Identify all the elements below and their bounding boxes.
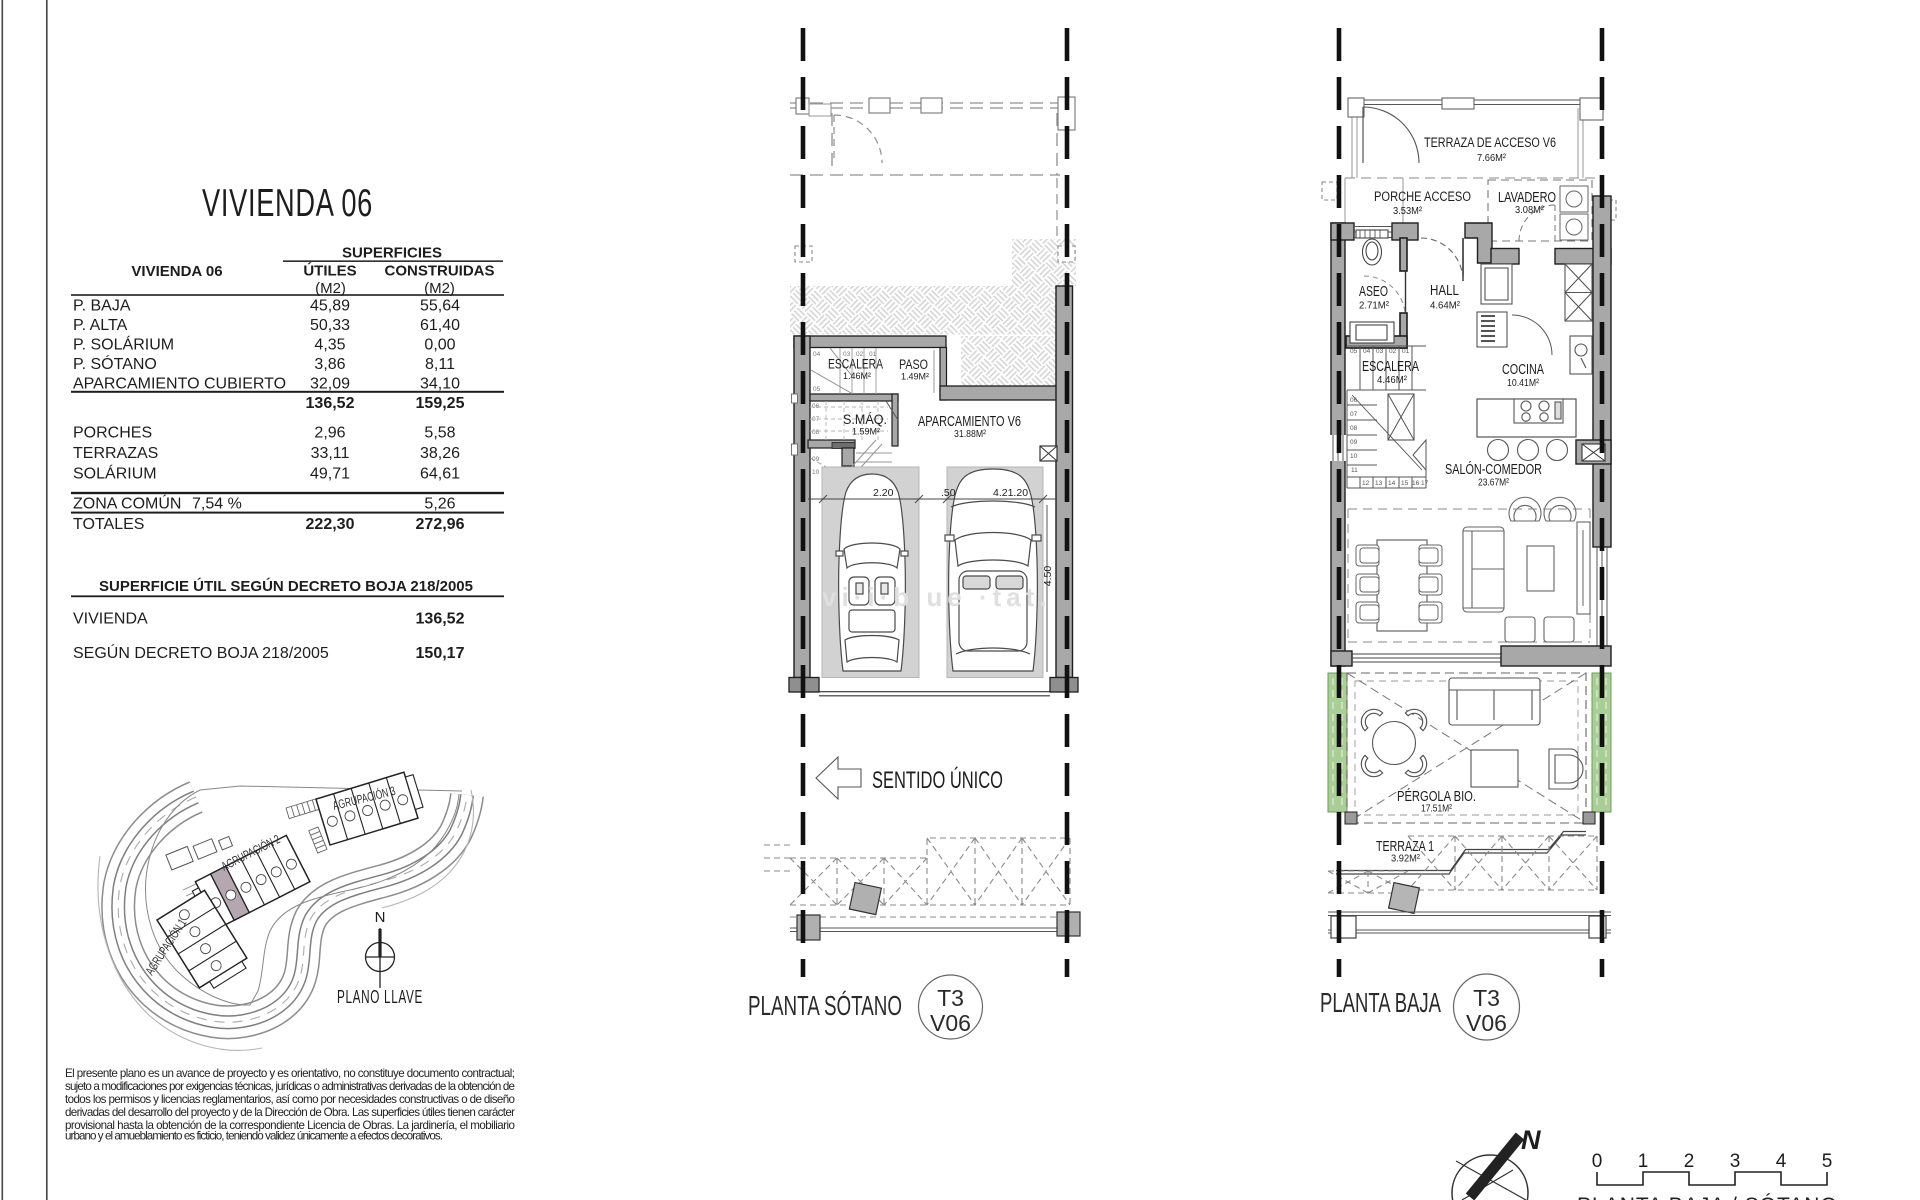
svg-text:P. SÓTANO: P. SÓTANO [73,354,157,373]
svg-text:2: 2 [1684,1151,1695,1172]
svg-text:5,26: 5,26 [424,496,455,513]
svg-text:2.20: 2.20 [873,487,894,499]
svg-text:S.MÁQ.: S.MÁQ. [843,412,887,427]
svg-text:.50: .50 [941,487,956,499]
svg-text:0: 0 [1592,1151,1603,1172]
svg-text:05: 05 [813,386,821,393]
svg-text:TERRAZA DE ACCESO V6: TERRAZA DE ACCESO V6 [1424,135,1556,150]
svg-text:06: 06 [812,403,820,410]
svg-text:N: N [375,909,386,926]
svg-text:vi·i·b ue ·tat.: vi·i·b ue ·tat. [822,582,1052,612]
svg-text:5: 5 [1822,1151,1833,1172]
svg-text:LAVADERO: LAVADERO [1498,190,1556,206]
svg-text:PORCHE ACCESO: PORCHE ACCESO [1374,189,1471,204]
svg-text:38,26: 38,26 [420,445,460,462]
svg-text:3,86: 3,86 [314,356,345,373]
svg-text:50,33: 50,33 [310,317,350,334]
svg-text:5,58: 5,58 [424,425,455,442]
svg-text:PLANTA BAJA: PLANTA BAJA [1320,987,1441,1018]
svg-text:4,35: 4,35 [314,337,345,354]
svg-text:8,11: 8,11 [425,356,455,373]
svg-text:1: 1 [1638,1151,1649,1172]
svg-text:sujeto a modificaciones por ex: sujeto a modificaciones por exigencias t… [65,1080,515,1093]
svg-text:13: 13 [1375,480,1383,487]
svg-text:45,89: 45,89 [310,298,350,315]
svg-text:V06: V06 [1466,1010,1507,1036]
svg-text:2,96: 2,96 [314,425,345,442]
svg-text:64,61: 64,61 [420,466,460,483]
svg-text:CONSTRUIDAS: CONSTRUIDAS [384,263,494,280]
svg-text:TOTALES: TOTALES [73,516,144,533]
svg-text:APARCAMIENTO V6: APARCAMIENTO V6 [918,414,1021,430]
svg-text:PLANTA SÓTANO: PLANTA SÓTANO [748,990,902,1021]
svg-text:3.53M²: 3.53M² [1393,206,1423,217]
svg-text:1.46M²: 1.46M² [843,371,871,382]
svg-text:N: N [1521,1125,1541,1155]
svg-text:09: 09 [1350,439,1358,446]
svg-text:T3: T3 [1473,985,1500,1011]
svg-text:VIVIENDA 06: VIVIENDA 06 [202,182,373,225]
svg-text:VIVIENDA 06: VIVIENDA 06 [131,263,222,280]
svg-text:04: 04 [813,351,821,358]
svg-text:23.67M²: 23.67M² [1478,478,1510,489]
svg-text:El presente plano es un avance: El presente plano es un avance de proyec… [65,1067,515,1080]
svg-text:3.08M²: 3.08M² [1515,205,1545,216]
svg-text:07: 07 [1350,411,1358,418]
svg-text:3: 3 [1730,1151,1741,1172]
svg-text:P. BAJA: P. BAJA [73,298,131,315]
svg-text:4: 4 [1776,1151,1787,1172]
svg-text:12: 12 [1362,480,1370,487]
svg-text:4.64M²: 4.64M² [1430,301,1461,312]
svg-text:16: 16 [1412,480,1420,487]
svg-text:COCINA: COCINA [1502,362,1544,378]
svg-text:1.59M²: 1.59M² [852,427,880,438]
svg-text:34,10: 34,10 [420,376,460,393]
svg-text:7.66M²: 7.66M² [1477,153,1507,164]
svg-text:49,71: 49,71 [310,466,350,483]
svg-text:TERRAZAS: TERRAZAS [73,445,158,462]
svg-text:136,52: 136,52 [306,395,355,412]
svg-text:SUPERFICIE ÚTIL SEGÚN DECRETO: SUPERFICIE ÚTIL SEGÚN DECRETO BOJA 218/2… [99,577,473,595]
svg-text:SUPERFICIES: SUPERFICIES [342,245,442,262]
svg-text:32,09: 32,09 [310,376,350,393]
svg-text:APARCAMIENTO CUBIERTO: APARCAMIENTO CUBIERTO [73,376,286,393]
svg-text:SOLÁRIUM: SOLÁRIUM [73,464,157,483]
svg-text:222,30: 222,30 [306,516,355,533]
svg-text:PASO: PASO [899,357,928,372]
svg-text:ASEO: ASEO [1359,284,1388,300]
svg-text:17: 17 [1421,480,1429,487]
svg-text:todos los permisos y licencias: todos los permisos y licencias reglament… [65,1093,515,1106]
svg-text:0,00: 0,00 [424,337,455,354]
svg-text:159,25: 159,25 [416,395,465,412]
svg-text:P. ALTA: P. ALTA [73,317,128,334]
svg-text:SENTIDO ÚNICO: SENTIDO ÚNICO [872,767,1003,794]
svg-text:PLANTA BAJA / SÓTANO: PLANTA BAJA / SÓTANO [1577,1194,1838,1200]
svg-text:10.41M²: 10.41M² [1507,378,1540,389]
svg-text:05: 05 [1350,348,1358,355]
svg-text:11: 11 [1351,467,1358,474]
svg-text:10: 10 [812,469,820,476]
svg-text:33,11: 33,11 [311,445,350,462]
svg-text:ESCALERA: ESCALERA [1362,359,1419,375]
svg-text:14: 14 [1388,480,1396,487]
svg-text:2.71M²: 2.71M² [1359,301,1390,312]
svg-text:150,17: 150,17 [416,645,465,662]
svg-text:ZONA COMÚN: ZONA COMÚN [73,494,181,513]
svg-text:ÚTILES: ÚTILES [303,262,356,280]
svg-text:01: 01 [1402,348,1410,355]
svg-text:4.21.20: 4.21.20 [993,487,1028,499]
svg-text:08: 08 [812,429,820,436]
svg-text:urbano y el amueblamiento es f: urbano y el amueblamiento es ficticio, t… [65,1130,443,1143]
svg-text:PORCHES: PORCHES [73,425,152,442]
svg-text:08: 08 [1350,425,1358,432]
svg-text:1.49M²: 1.49M² [901,372,929,383]
svg-text:derivadas del desarrollo del p: derivadas del desarrollo del proyecto y … [65,1106,515,1119]
svg-text:P. SOLÁRIUM: P. SOLÁRIUM [73,335,174,354]
svg-text:ESCALERA: ESCALERA [828,357,883,372]
svg-text:4.46M²: 4.46M² [1377,375,1408,386]
svg-text:VIVIENDA: VIVIENDA [73,611,148,628]
svg-text:55,64: 55,64 [420,298,460,315]
svg-text:272,96: 272,96 [416,516,465,533]
svg-text:3.92M²: 3.92M² [1391,854,1421,865]
svg-text:SALÓN-COMEDOR: SALÓN-COMEDOR [1445,461,1542,478]
svg-text:06: 06 [1350,397,1358,404]
svg-text:07: 07 [812,416,820,423]
svg-text:17.51M²: 17.51M² [1421,804,1453,815]
svg-text:04: 04 [1363,348,1371,355]
svg-text:136,52: 136,52 [416,611,465,628]
svg-text:7,54 %: 7,54 % [192,496,242,513]
svg-text:T3: T3 [937,985,964,1011]
svg-text:03: 03 [1376,348,1384,355]
svg-text:02: 02 [1389,348,1397,355]
svg-text:10: 10 [1350,453,1358,460]
svg-text:PÉRGOLA BIO.: PÉRGOLA BIO. [1397,788,1476,805]
svg-text:31.88M²: 31.88M² [954,429,987,440]
svg-text:PLANO LLAVE: PLANO LLAVE [337,987,423,1007]
svg-text:SEGÚN DECRETO BOJA 218/2005: SEGÚN DECRETO BOJA 218/2005 [73,643,329,662]
svg-text:15: 15 [1401,480,1409,487]
svg-text:V06: V06 [930,1010,971,1036]
svg-text:61,40: 61,40 [420,317,460,334]
svg-text:HALL: HALL [1430,283,1459,299]
